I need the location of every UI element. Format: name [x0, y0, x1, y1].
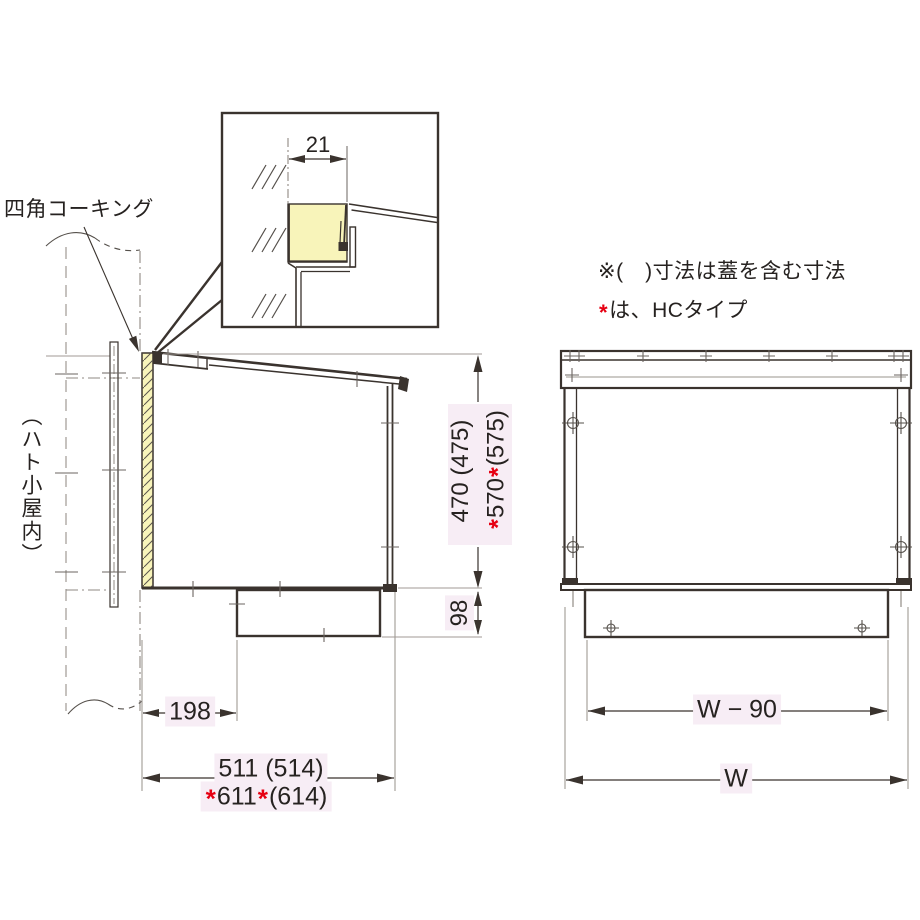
- hc-star: *: [484, 467, 512, 477]
- leader-arrowhead: [129, 336, 139, 352]
- side-view: [142, 349, 409, 642]
- dim-body-width: W − 90: [693, 698, 781, 723]
- dim-wall-offset: 198: [165, 700, 215, 725]
- hc-star: *: [258, 784, 268, 814]
- front-view-base-box: [585, 590, 888, 637]
- hc-note-text: は、HCタイプ: [609, 299, 748, 322]
- dimension-lines: [143, 355, 907, 785]
- caulking-label: 四角コーキング: [4, 199, 154, 220]
- hc-star: *: [484, 519, 512, 529]
- extension-lines: [142, 354, 908, 791]
- dim-lip-width: 21: [306, 134, 330, 156]
- wall-section: [46, 233, 142, 714]
- detail-callout: [84, 227, 222, 354]
- dim-depth-standard: 511 (514): [214, 757, 327, 782]
- note-paren-dims: ※( )寸法は蓋を含む寸法: [598, 261, 846, 282]
- caulking-detail-square: [288, 204, 347, 262]
- dim-overall-width: W: [720, 767, 752, 792]
- dim-height-standard: 470 (475): [449, 420, 473, 523]
- hc-asterisk: *: [599, 300, 608, 325]
- front-view: [561, 350, 912, 637]
- note-hc-type: *は、HCタイプ: [598, 299, 748, 321]
- leader-line: [84, 227, 136, 346]
- front-view-cap: [561, 351, 911, 388]
- dim-height-hc: *570*(575): [483, 410, 508, 530]
- screw-marks: [562, 412, 912, 558]
- pigeon-house-label: （ハト小屋内）: [20, 405, 41, 566]
- roof-end-cap: [398, 376, 409, 392]
- dim-base-height: 98: [448, 596, 472, 631]
- base-screw-marks: [603, 620, 870, 636]
- dim-depth-hc: *611*(614): [201, 783, 332, 810]
- technical-drawing-canvas: 四角コーキング （ハト小屋内） ※( )寸法は蓋を含む寸法 *は、HCタイプ 2…: [0, 0, 920, 920]
- side-view-base-box: [237, 590, 380, 636]
- lid-hem-hook: [339, 242, 349, 251]
- hc-star: *: [206, 784, 216, 814]
